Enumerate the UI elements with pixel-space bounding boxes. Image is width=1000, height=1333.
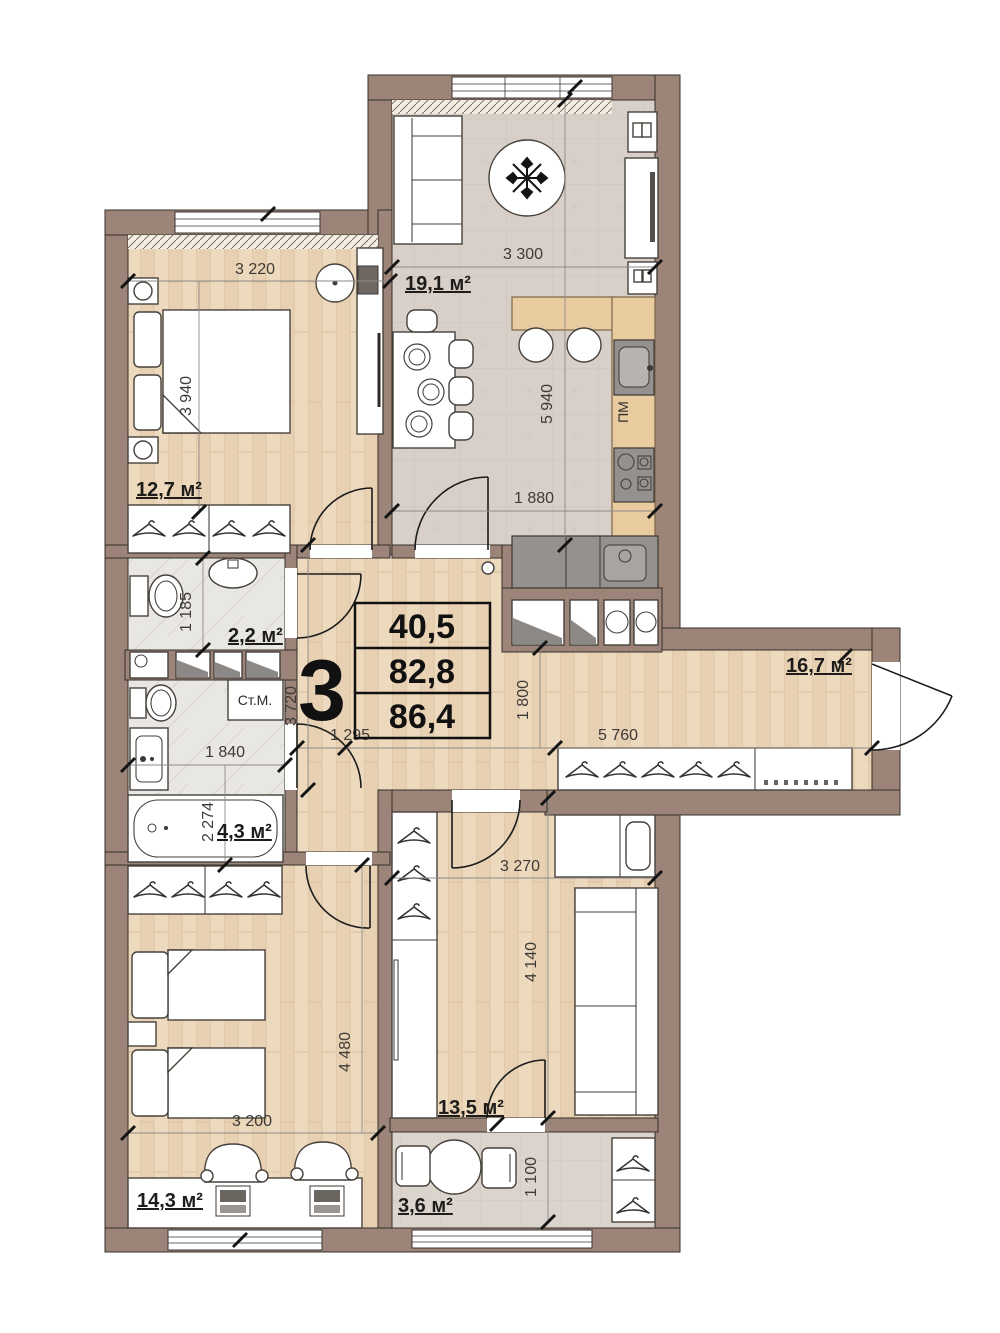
bedroom-top-sill-hatch	[128, 235, 378, 249]
dim-label: 3 300	[503, 246, 543, 263]
floor-plan-page: Ст.М.	[0, 0, 1000, 1333]
balcony-chair	[396, 1146, 430, 1186]
dining-chair	[449, 377, 473, 405]
kitchen-window	[452, 77, 612, 98]
kitchen-sill-hatch	[392, 100, 612, 114]
vent-shaft	[604, 600, 630, 645]
round-table	[427, 1140, 481, 1194]
book-icon	[633, 123, 642, 137]
dim-label: 5 940	[539, 384, 556, 424]
dim-label: 3 220	[235, 261, 275, 278]
info-value-total: 82,8	[389, 653, 455, 691]
utility-left-wall	[502, 545, 512, 588]
tv-icon	[650, 172, 655, 242]
toilet-tank	[130, 688, 146, 718]
tv-box	[358, 266, 378, 294]
wc-area-label: 2,2 м²	[228, 625, 283, 647]
nightstand	[128, 1022, 156, 1046]
plate-icon	[418, 379, 444, 405]
washing-machine-label: Ст.М.	[238, 692, 272, 708]
mirror	[394, 960, 398, 1060]
dim-label: 3 270	[500, 858, 540, 875]
dim-label: 1 880	[514, 490, 554, 507]
dim-label: 1 185	[178, 592, 195, 632]
book-icon	[634, 270, 642, 282]
info-value-living: 40,5	[389, 608, 455, 646]
balcony-area-label: 3,6 м²	[398, 1195, 453, 1217]
dining-chair	[449, 412, 473, 440]
hallway-top-wall	[655, 628, 900, 650]
laptop-icon	[310, 1186, 344, 1216]
bedroom-top-area-label: 12,7 м²	[136, 479, 202, 501]
kitchen-right-wall	[655, 75, 680, 630]
faucet-icon	[140, 756, 146, 762]
toilet-tank	[130, 576, 148, 616]
hallway-bottom-wall	[545, 790, 900, 815]
outer-wall-left	[105, 210, 128, 1252]
plate-icon	[406, 411, 432, 437]
dim-label: 1 840	[205, 744, 245, 761]
pillow	[132, 952, 168, 1018]
dim-label: 3 940	[178, 376, 195, 416]
dim-label: 3 200	[232, 1113, 272, 1130]
pillow	[626, 822, 650, 870]
bathroom-area-label: 4,3 м²	[217, 821, 272, 843]
kitchen-door-gap	[415, 545, 490, 558]
single-bed	[168, 950, 265, 1020]
hallway-area-label: 16,7 м²	[786, 655, 852, 677]
info-value-overall: 86,4	[389, 698, 455, 736]
outer-wall-right-lower	[655, 815, 680, 1252]
kitchen-living-area-label: 19,1 м²	[405, 273, 471, 295]
plant-icon	[507, 158, 547, 198]
faucet-icon	[647, 365, 653, 371]
plate-icon	[404, 344, 430, 370]
bedroom-top-door-gap	[310, 545, 372, 558]
sink-basin	[619, 347, 649, 387]
hall-passage-floor	[297, 790, 378, 852]
pillow	[134, 375, 161, 430]
dim-label: 1 100	[523, 1157, 540, 1197]
single-bed	[168, 1048, 265, 1118]
bar-counter	[512, 297, 615, 330]
dishwasher-label: ПМ	[615, 401, 631, 423]
bar-stool	[519, 328, 553, 362]
room-bottom-area-label: 13,5 м²	[438, 1097, 504, 1119]
dim-label: 5 760	[598, 727, 638, 744]
lamp-icon	[134, 441, 152, 459]
bar-stool	[567, 328, 601, 362]
apartment-number: 3	[298, 643, 346, 739]
dim-label: 1 800	[515, 680, 532, 720]
bedroom-top-window	[175, 212, 320, 233]
entrance-door-gap	[872, 662, 900, 750]
wc-sink	[209, 558, 257, 588]
laptop-icon	[216, 1186, 250, 1216]
book-icon	[642, 123, 651, 137]
column	[482, 562, 494, 574]
pillow	[134, 312, 161, 367]
vent-shaft	[634, 600, 658, 645]
floor-plan-canvas: Ст.М.	[0, 0, 1000, 1333]
pillow	[132, 1050, 168, 1116]
sofa-large	[575, 888, 658, 1115]
lamp-icon	[134, 282, 152, 300]
dim-label: 4 140	[523, 942, 540, 982]
dining-chair	[449, 340, 473, 368]
pipe-shaft	[130, 652, 168, 678]
balcony-glazing	[412, 1230, 592, 1248]
dining-chair	[407, 310, 437, 332]
room-bottom-door-gap	[452, 790, 520, 812]
kitchen-cabinet-run	[612, 297, 655, 559]
hallway-furniture	[558, 748, 852, 790]
balcony-chair	[482, 1148, 516, 1188]
dim-label: 4 480	[337, 1032, 354, 1072]
wc-door-gap	[285, 568, 297, 638]
bedroom-bottom-area-label: 14,3 м²	[137, 1190, 203, 1212]
dim-label: 2 274	[200, 802, 217, 842]
wardrobe-tall	[392, 812, 437, 1118]
